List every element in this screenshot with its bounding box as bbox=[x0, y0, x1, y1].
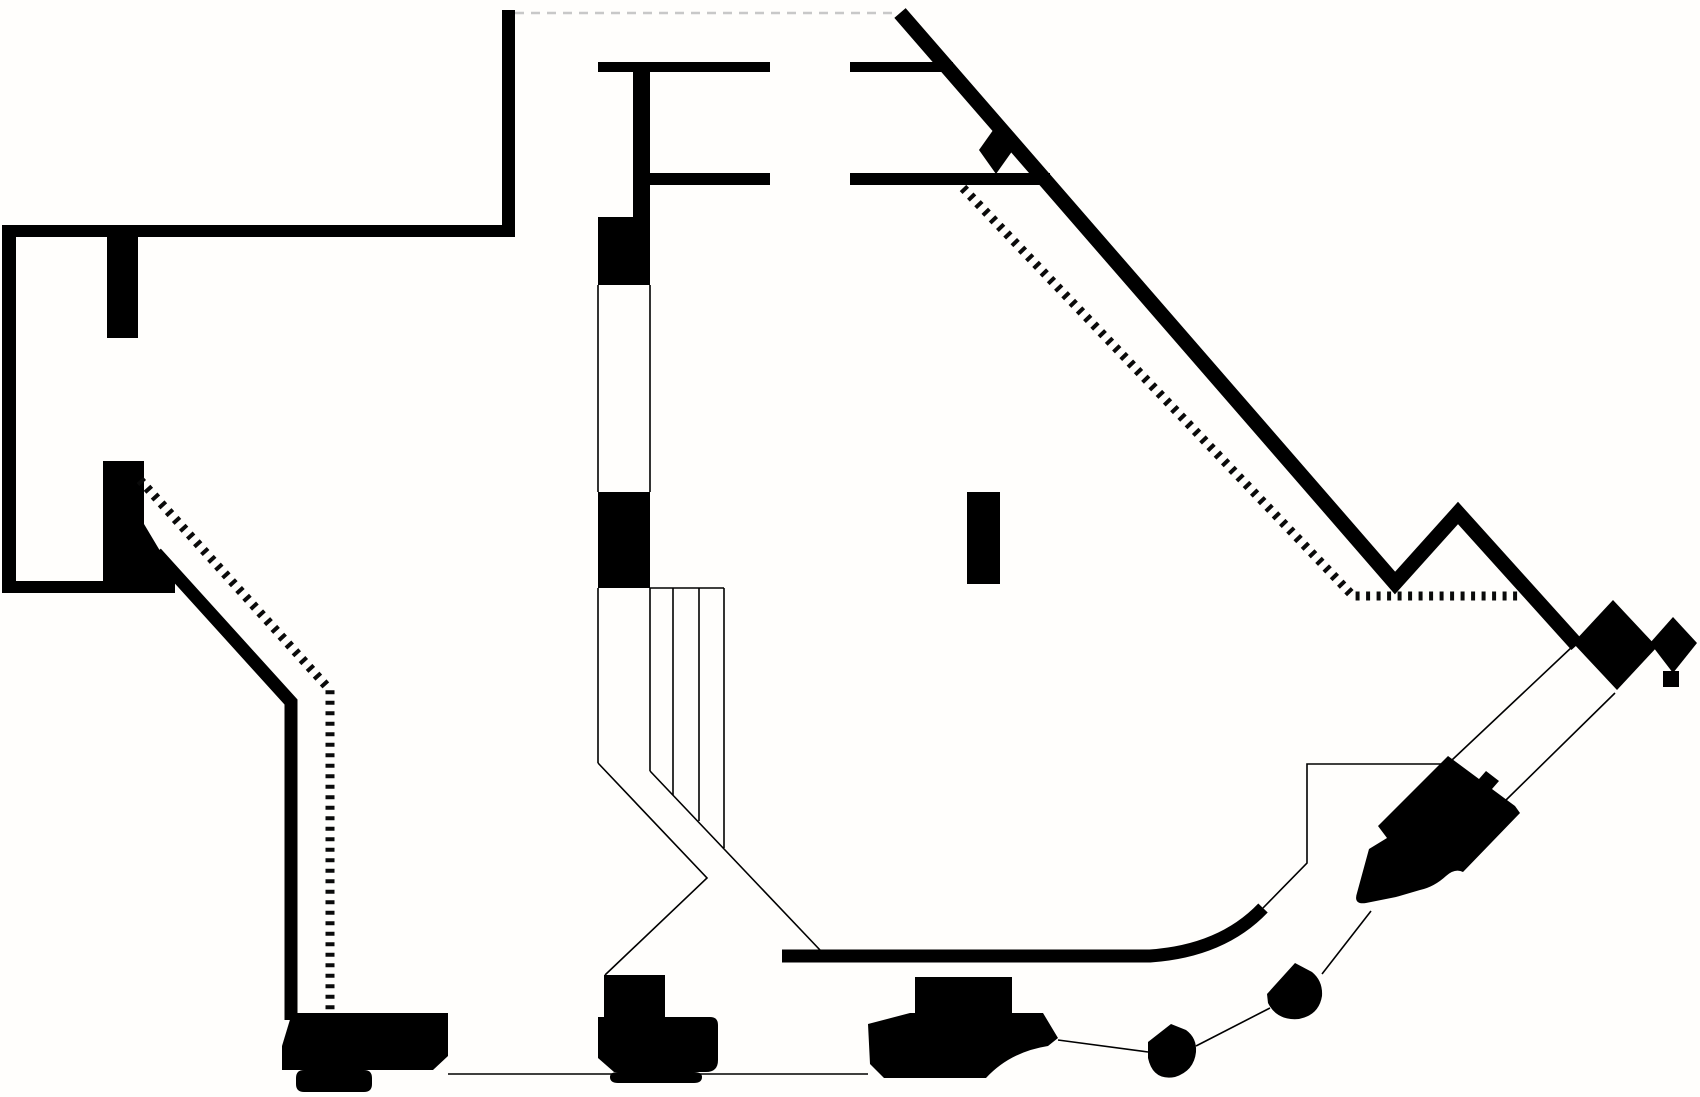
pier-lower-left bbox=[103, 461, 144, 581]
cluster-large-diamond bbox=[1573, 600, 1657, 690]
free-standing-column bbox=[967, 492, 1000, 584]
link-stool1-stool2 bbox=[1196, 1008, 1270, 1046]
cluster-foot-square bbox=[1663, 671, 1679, 687]
pier-bottom-2-block bbox=[604, 975, 665, 1017]
cluster-stem-upper bbox=[1452, 646, 1573, 760]
wall-upper-horizontal bbox=[2, 225, 515, 237]
pier-bottom-3-block bbox=[915, 977, 1012, 1013]
blob-stool-1 bbox=[1148, 1024, 1196, 1078]
blob-stool-2 bbox=[1267, 963, 1322, 1019]
link-console3-stool1 bbox=[1058, 1040, 1148, 1052]
f-wall-arm-mid-right bbox=[850, 173, 1050, 185]
f-wall-arm-top-left bbox=[598, 62, 770, 72]
console-right-piano bbox=[1356, 756, 1520, 903]
console-bottom-left bbox=[282, 1013, 448, 1070]
console-bottom-3 bbox=[868, 1013, 1058, 1078]
dotted-guide-lines bbox=[140, 188, 1520, 1013]
console-bottom-2 bbox=[598, 1017, 718, 1072]
main-diagonal-wall bbox=[900, 13, 1577, 645]
link-stool2-console bbox=[1322, 911, 1371, 974]
filled-walls-and-piers bbox=[2, 10, 1697, 1092]
console-bottom-left-tab bbox=[296, 1070, 372, 1092]
cluster-small-diamond bbox=[1650, 617, 1697, 673]
left-diagonal-wall bbox=[156, 553, 291, 1020]
cluster-stem-lower bbox=[1505, 693, 1615, 801]
wall-left-vertical bbox=[2, 225, 16, 593]
bottom-curved-wall bbox=[782, 908, 1263, 956]
floor-plan-canvas bbox=[0, 0, 1700, 1097]
f-wall-stem bbox=[633, 62, 650, 217]
stair-return-line bbox=[598, 763, 707, 975]
wall-lower-left-horizontal bbox=[2, 581, 175, 593]
pier-upper-left bbox=[107, 237, 138, 338]
floor-plan-page bbox=[0, 0, 1700, 1097]
stair-diagonal-stringer bbox=[650, 771, 820, 950]
column-pier-upper bbox=[598, 217, 650, 285]
column-pier-lower bbox=[598, 492, 650, 588]
f-wall-arm-mid-left bbox=[633, 173, 770, 185]
wall-top-vertical bbox=[502, 10, 515, 237]
